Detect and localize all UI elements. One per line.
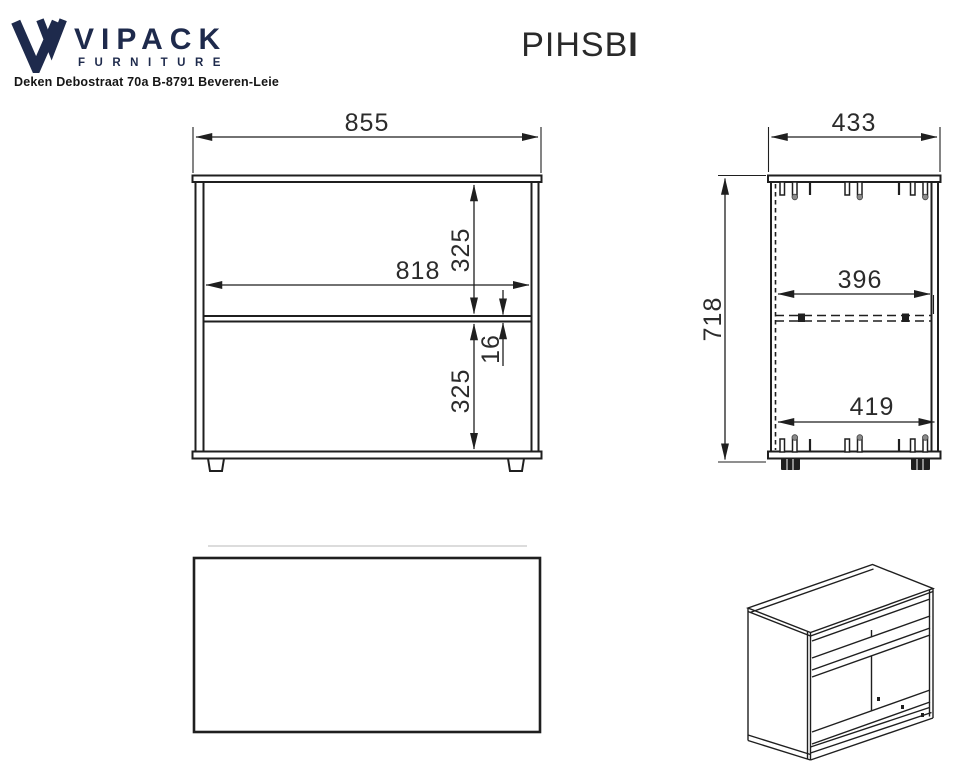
front-view: 855 325 818 16 325 — [193, 109, 542, 471]
front-bottom-panel — [193, 452, 542, 459]
dim-side-shelf-depth: 396 — [838, 266, 883, 294]
drawing-canvas: 855 325 818 16 325 — [0, 0, 974, 767]
perspective-view — [748, 565, 933, 761]
front-left-foot — [208, 459, 224, 472]
technical-drawing-sheet: VIPACK FURNITURE Deken Debostraat 70a B-… — [0, 0, 974, 767]
dim-front-lower-height: 325 — [447, 369, 475, 414]
side-shelf-support-right — [902, 314, 909, 323]
side-left-foot — [781, 459, 800, 471]
side-top-dowels — [780, 182, 928, 200]
side-top-panel — [768, 176, 941, 183]
dim-side-bottom-depth: 419 — [850, 393, 895, 421]
side-bottom-dowels — [780, 435, 928, 452]
side-right-foot — [911, 459, 930, 471]
persp-shelf-back-edge — [812, 616, 930, 658]
dim-front-shelf-thickness: 16 — [477, 334, 505, 364]
dim-front-inner-width: 818 — [396, 257, 441, 285]
top-view-outline — [194, 558, 540, 732]
front-right-foot — [508, 459, 524, 472]
side-shelf-support-left — [798, 314, 805, 323]
dim-front-upper-height: 325 — [447, 228, 475, 273]
dim-side-overall-height: 718 — [699, 297, 727, 342]
dim-side-overall-depth: 433 — [832, 109, 877, 137]
side-view: 433 718 396 419 — [699, 109, 941, 470]
top-view — [194, 546, 540, 732]
dim-front-overall-width: 855 — [345, 109, 390, 137]
front-top-panel — [193, 176, 542, 183]
